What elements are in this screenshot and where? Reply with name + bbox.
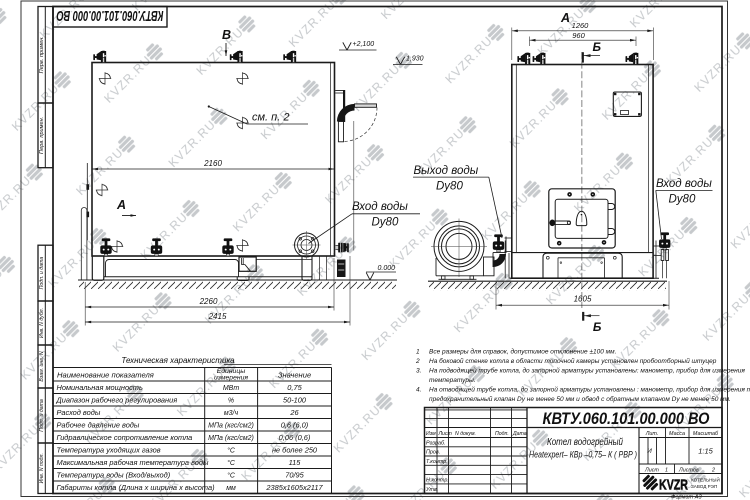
svg-text:КВТУ.060.101.00.000 ВО: КВТУ.060.101.00.000 ВО <box>56 7 163 24</box>
svg-text:Утв.: Утв. <box>425 487 438 493</box>
svg-text:Диапазон рабочего регулировани: Диапазон рабочего регулирования <box>56 395 178 404</box>
svg-text:А: А <box>116 198 126 212</box>
svg-text:Лит.: Лит. <box>645 431 659 437</box>
svg-text:1: 1 <box>416 349 420 356</box>
svg-text:3.: 3. <box>416 368 422 375</box>
svg-text:Расход воды: Расход воды <box>57 408 101 417</box>
svg-text:1: 1 <box>665 467 668 473</box>
svg-text:МПа (кгс/см2): МПа (кгс/см2) <box>208 422 254 429</box>
svg-text:Лист: Лист <box>438 431 453 437</box>
svg-text:1:15: 1:15 <box>698 447 713 456</box>
svg-text:м3/ч: м3/ч <box>224 410 239 417</box>
svg-text:Б: Б <box>593 320 602 334</box>
svg-text:Н.контр.: Н.контр. <box>426 478 449 484</box>
svg-text:Разраб.: Разраб. <box>426 441 446 447</box>
svg-text:Выход воды: Выход воды <box>414 165 479 177</box>
svg-text:Б: Б <box>593 40 602 54</box>
svg-text:Dy80: Dy80 <box>436 181 463 193</box>
svg-text:см. п. 2: см. п. 2 <box>252 112 289 124</box>
svg-text:1260: 1260 <box>572 21 590 30</box>
svg-text:2160: 2160 <box>203 159 222 168</box>
svg-text:Масса: Масса <box>669 431 685 437</box>
svg-text:2: 2 <box>415 358 420 365</box>
svg-text:Пров.: Пров. <box>426 450 440 456</box>
svg-text:2385х1605х2117: 2385х1605х2117 <box>265 483 323 492</box>
svg-text:Лист: Лист <box>644 467 659 473</box>
svg-text:В: В <box>222 28 231 42</box>
svg-text:Подп. и дата: Подп. и дата <box>39 257 45 290</box>
svg-text:2: 2 <box>711 467 715 473</box>
svg-text:Дата: Дата <box>512 431 527 437</box>
svg-text:Все размеры для справок, допус: Все размеры для справок, допустимое откл… <box>429 348 617 356</box>
svg-text:°С: °С <box>227 446 236 454</box>
svg-text:не более 250: не более 250 <box>272 445 318 454</box>
svg-text:Перв. примен.: Перв. примен. <box>39 117 45 154</box>
svg-text:Максимальная рабочая температу: Максимальная рабочая температура воды <box>57 458 209 467</box>
svg-text:Т.контр.: Т.контр. <box>426 459 448 465</box>
svg-text:115: 115 <box>289 458 302 467</box>
svg-text:1,930: 1,930 <box>406 56 424 63</box>
svg-text:ЗАВОД РЭП: ЗАВОД РЭП <box>691 484 717 489</box>
svg-text:0.000: 0.000 <box>378 265 396 272</box>
svg-text:Heatexpert– КВр –0,75– К ( РВР: Heatexpert– КВр –0,75– К ( РВР ) <box>529 450 637 460</box>
svg-text:Листов: Листов <box>678 467 699 473</box>
svg-text:Dy80: Dy80 <box>372 217 399 229</box>
svg-text:мм: мм <box>226 485 236 492</box>
svg-text:0,75: 0,75 <box>287 383 302 392</box>
svg-text:Подп. и дата: Подп. и дата <box>39 399 45 432</box>
svg-text:И: И <box>647 448 652 455</box>
svg-text:Взам. инв. N: Взам. инв. N <box>39 351 45 381</box>
svg-text:Рабочее давление воды: Рабочее давление воды <box>57 420 140 429</box>
svg-text:1605: 1605 <box>574 295 592 304</box>
svg-text:МПа (кгс/см2): МПа (кгс/см2) <box>208 435 254 442</box>
svg-text:°С: °С <box>227 471 236 479</box>
svg-text:А: А <box>560 11 570 25</box>
svg-text:°С: °С <box>227 459 236 467</box>
svg-text:Формат А3: Формат А3 <box>671 495 702 500</box>
svg-text:Номинальная мощность: Номинальная мощность <box>57 383 143 392</box>
svg-text:Масштаб: Масштаб <box>693 431 719 437</box>
svg-text:960: 960 <box>572 31 585 40</box>
svg-text:%: % <box>228 397 234 404</box>
svg-text:2415: 2415 <box>208 312 227 321</box>
svg-text:Габариты котла (Длина х ширина: Габариты котла (Длина х ширина х высота) <box>57 483 216 492</box>
svg-text:Котел водогрейный: Котел водогрейный <box>547 437 623 448</box>
svg-text:Dy80: Dy80 <box>669 193 696 205</box>
svg-text:КВТУ.060.101.00.000 ВО: КВТУ.060.101.00.000 ВО <box>543 410 710 428</box>
svg-text:Перв. примен.: Перв. примен. <box>39 36 45 73</box>
svg-text:КОТЕЛЬНЫЙ: КОТЕЛЬНЫЙ <box>691 476 720 483</box>
svg-text:предохранительный клапан Dу н: предохранительный клапан Dу не менее 50 … <box>429 395 731 403</box>
svg-text:2260: 2260 <box>199 297 218 306</box>
svg-text:Изм: Изм <box>426 431 436 437</box>
svg-text:температуры.: температуры. <box>429 377 476 384</box>
svg-text:Инв. N дубл.: Инв. N дубл. <box>39 308 45 338</box>
svg-text:Температура воды (Вход/выход): Температура воды (Вход/выход) <box>57 470 171 479</box>
svg-text:4.: 4. <box>416 387 422 394</box>
svg-text:Значение: Значение <box>278 371 311 380</box>
svg-text:50-100: 50-100 <box>283 395 307 404</box>
svg-text:KVZR: KVZR <box>659 478 688 494</box>
svg-text:Инв. N подл.: Инв. N подл. <box>39 453 45 483</box>
svg-text:0,6 (6,0): 0,6 (6,0) <box>281 420 309 429</box>
svg-text:26: 26 <box>289 408 299 417</box>
svg-text:+2,100: +2,100 <box>353 41 375 48</box>
svg-text:Техническая характеристика: Техническая характеристика <box>121 356 235 365</box>
svg-text:70/95: 70/95 <box>285 470 304 479</box>
svg-text:Гидравлическое сопротивление к: Гидравлическое сопротивление котла <box>57 433 193 442</box>
svg-text:На боковой стенке котла в обла: На боковой стенке котла в области топочн… <box>429 357 717 365</box>
svg-text:Температура уходящих газов: Температура уходящих газов <box>57 445 161 454</box>
svg-text:измерения: измерения <box>214 375 248 382</box>
svg-text:N докум.: N докум. <box>455 431 476 437</box>
svg-text:На подводящей трубе котла, д: На подводящей трубе котла, до запорной а… <box>429 367 745 375</box>
svg-text:Наименование показателя: Наименование показателя <box>57 371 154 380</box>
svg-text:0,06 (0,6): 0,06 (0,6) <box>279 433 311 442</box>
svg-text:На отводящей трубе котла, до з: На отводящей трубе котла, до запорной ар… <box>429 386 750 394</box>
svg-text:Подп.: Подп. <box>495 431 509 437</box>
svg-text:Вход воды: Вход воды <box>656 178 712 190</box>
svg-text:МВт: МВт <box>223 385 240 392</box>
svg-text:Вход воды: Вход воды <box>352 201 408 213</box>
